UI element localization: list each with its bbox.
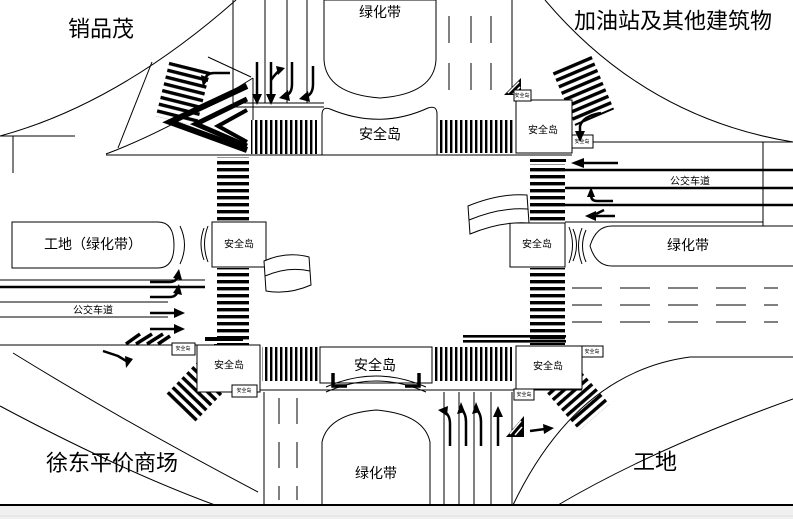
crosswalk-south-left: [262, 347, 319, 381]
east-green-belt-label: 绿化带: [667, 238, 709, 254]
west-bus-lane-label: 公交车道: [73, 304, 113, 317]
mini-label: 安全岛: [584, 348, 599, 355]
drawing-canvas: 绿化带 工地（绿化带） 绿化带 绿化带 安全岛 安全岛 安全岛 安全岛 安全岛: [0, 0, 793, 519]
crosswalk-east-upper: [530, 164, 565, 222]
corner-label-top-left: 销品茂: [68, 18, 134, 43]
east-bus-lane-label: 公交车道: [670, 175, 710, 188]
mini-label: 安全岛: [514, 92, 529, 99]
median-south-green-belt: 绿化带: [322, 410, 430, 505]
median-west-construction: 工地（绿化带）: [12, 222, 185, 268]
bottom-right-island-label: 安全岛: [533, 360, 563, 373]
corner-label-bottom-right: 工地: [633, 451, 677, 476]
bottom-left-island-label: 安全岛: [214, 359, 244, 372]
viewport-footer: [0, 504, 793, 519]
crosswalk-west-lower: [217, 268, 249, 345]
west-median-label: 工地（绿化带）: [44, 237, 142, 253]
crosswalk-east-lower: [530, 268, 565, 345]
mini-label: 安全岛: [175, 345, 190, 352]
intersection-channelization-drawing: 绿化带 工地（绿化带） 绿化带 绿化带 安全岛 安全岛 安全岛 安全岛 安全岛: [0, 0, 793, 519]
north-island-label: 安全岛: [359, 126, 401, 143]
median-east-green-belt: 绿化带: [579, 226, 793, 266]
median-north-green-belt: 绿化带: [324, 0, 436, 98]
window-edge-strip: [0, 506, 793, 519]
crosswalk-north-right: [437, 120, 513, 153]
mini-label: 安全岛: [574, 138, 589, 145]
crosswalk-north-left: [251, 120, 317, 154]
top-right-island-label: 安全岛: [528, 124, 558, 137]
mid-left-island-label: 安全岛: [224, 238, 254, 251]
mini-label: 安全岛: [516, 391, 531, 398]
north-green-belt-label: 绿化带: [359, 5, 401, 21]
mid-right-island-label: 安全岛: [522, 238, 552, 251]
crosswalk-west-upper: [217, 157, 249, 221]
corner-label-top-right: 加油站及其他建筑物: [574, 10, 772, 35]
mini-label: 安全岛: [236, 387, 251, 394]
corner-label-bottom-left: 徐东平价商场: [46, 452, 178, 477]
crosswalk-south-right: [434, 347, 512, 381]
south-green-belt-label: 绿化带: [355, 466, 397, 482]
viewport-bottom-border: [0, 504, 793, 506]
bottom-center-island-label: 安全岛: [354, 357, 396, 374]
